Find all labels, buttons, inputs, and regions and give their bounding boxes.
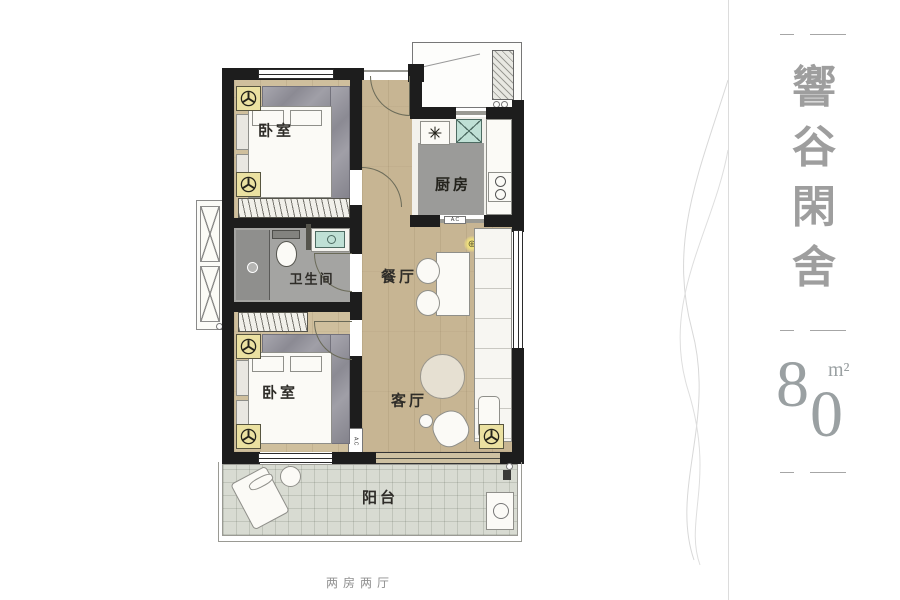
ac-label: A.C xyxy=(451,217,459,223)
bedroom-bottom-door-leaf xyxy=(314,321,352,322)
ceiling-fan-icon xyxy=(236,86,261,111)
bathroom-bottom-wall xyxy=(234,302,362,312)
dining-chair xyxy=(416,258,440,284)
floorplan-page: A.C 卧室 厨房 A.C 卫生间 xyxy=(0,0,900,600)
decor-wave-lines xyxy=(630,60,770,570)
kitchen-bottom-wall xyxy=(410,215,440,227)
ac-niche-bedroom: A.C xyxy=(348,428,363,454)
rule-dash xyxy=(780,34,794,35)
platform-fold-line xyxy=(416,46,492,104)
wardrobe xyxy=(238,312,308,332)
ceiling-fan-icon xyxy=(479,424,504,449)
balcony-utility-box xyxy=(503,470,511,480)
layout-caption: 两房两厅 xyxy=(270,574,450,591)
living-side-window xyxy=(513,230,523,350)
bedroom-living-divider xyxy=(350,312,362,320)
wardrobe xyxy=(238,198,350,218)
ceiling-fan-icon xyxy=(236,172,261,197)
title-char: 谷 xyxy=(784,122,844,174)
area-digit-0: 0 xyxy=(810,382,843,448)
title-char: 閑 xyxy=(784,182,844,234)
area-digit-8: 8 xyxy=(776,352,809,418)
bedroom-living-divider xyxy=(350,356,362,428)
rule-dash xyxy=(780,330,794,331)
rule-dash xyxy=(810,330,846,331)
area-figure: 8 m² 0 xyxy=(768,352,898,462)
dining-table xyxy=(436,252,470,316)
nightstand xyxy=(236,114,249,150)
title-char: 舍 xyxy=(784,242,844,294)
room-label-balcony: 阳台 xyxy=(362,487,398,508)
dining-chair xyxy=(416,290,440,316)
washer-drum xyxy=(493,503,509,519)
toilet-tank xyxy=(272,230,300,239)
elevator-icon xyxy=(200,206,220,262)
entry-door-leaf xyxy=(409,76,410,116)
bathroom-right-wall xyxy=(350,218,362,254)
balcony-utility-dot xyxy=(506,463,513,470)
entry-threshold xyxy=(364,70,410,72)
project-title-vertical: 響 谷 閑 舍 xyxy=(784,62,844,294)
room-label-bedroom-top: 卧室 xyxy=(258,120,294,141)
bathroom-door-leaf xyxy=(314,253,352,254)
ac-outdoor-unit xyxy=(492,50,514,100)
basin-drain xyxy=(327,235,336,244)
right-wall-lower xyxy=(512,348,524,464)
shower-head xyxy=(247,262,258,273)
ceiling-fan-icon xyxy=(236,424,261,449)
room-label-bathroom: 卫生间 xyxy=(289,269,334,288)
fridge xyxy=(420,121,450,145)
snowflake-icon xyxy=(427,125,443,141)
left-wall xyxy=(222,68,234,464)
room-label-dining: 餐厅 xyxy=(381,266,417,287)
side-marble xyxy=(330,86,350,200)
ac-niche-kitchen: A.C xyxy=(444,216,466,224)
room-label-kitchen: 厨房 xyxy=(435,174,471,195)
title-char: 響 xyxy=(784,62,844,114)
kitchen-sink xyxy=(456,119,482,143)
room-label-bedroom-bottom: 卧室 xyxy=(262,382,298,403)
right-wall-upper xyxy=(512,100,524,232)
pillow xyxy=(290,356,322,372)
pillow xyxy=(290,110,322,126)
rule-dash xyxy=(810,472,846,473)
burner xyxy=(495,189,506,200)
rule-dash xyxy=(810,34,846,35)
toilet-bowl xyxy=(276,241,297,267)
kitchen-counter-line xyxy=(456,111,490,115)
balcony-table xyxy=(280,466,301,487)
kitchen-bottom-wall xyxy=(484,215,512,227)
elevator-icon xyxy=(200,266,220,322)
bedroom-top-window xyxy=(258,69,334,79)
rule-dash xyxy=(780,472,794,473)
area-unit: m² xyxy=(828,360,850,380)
wall-segment xyxy=(410,107,456,119)
side-table xyxy=(419,414,433,428)
burner xyxy=(495,176,506,187)
ac-label: A.C xyxy=(353,437,359,445)
ceiling-fan-icon xyxy=(236,334,261,359)
bathroom-top-wall xyxy=(234,218,362,228)
bedroom-hall-divider xyxy=(350,80,362,170)
nightstand xyxy=(236,360,249,396)
room-label-living: 客厅 xyxy=(391,390,427,411)
